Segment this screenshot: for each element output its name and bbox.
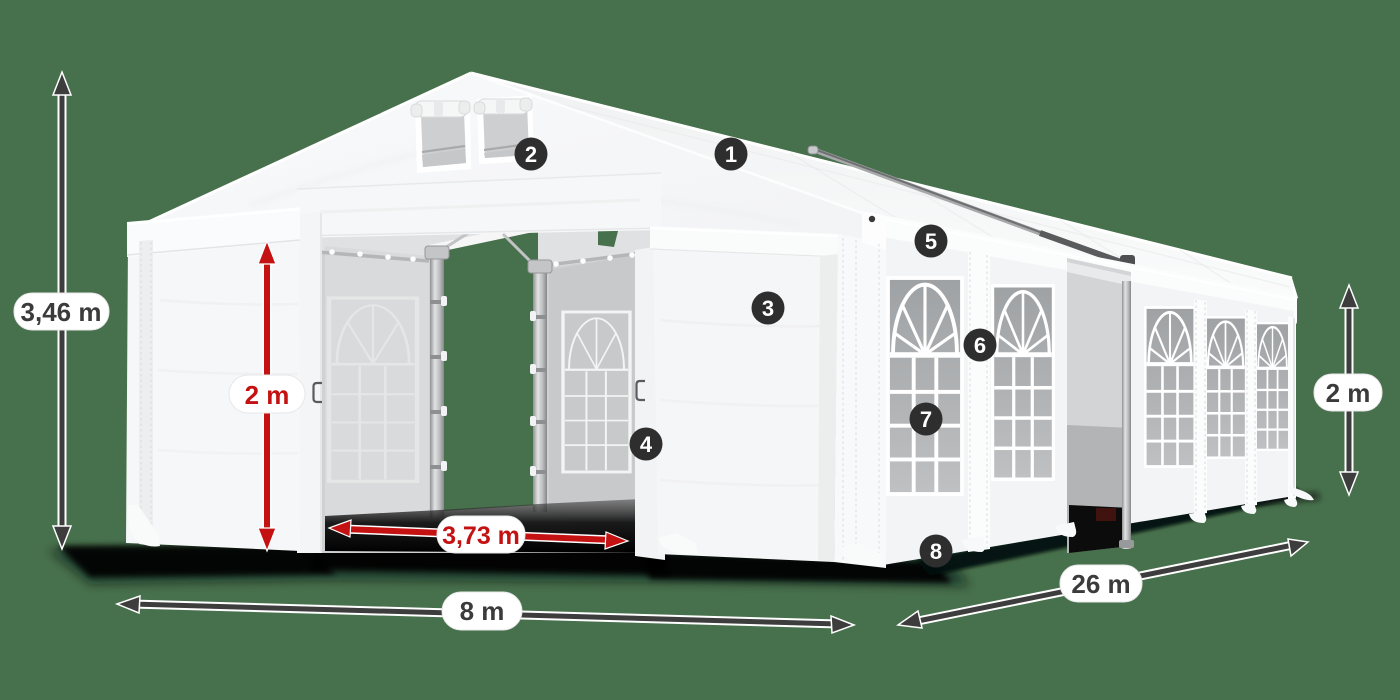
svg-text:4: 4 [640, 432, 653, 457]
svg-text:8 m: 8 m [460, 596, 505, 626]
svg-text:26 m: 26 m [1071, 569, 1130, 599]
svg-text:6: 6 [974, 333, 986, 358]
svg-text:2 m: 2 m [1326, 378, 1371, 408]
svg-text:8: 8 [930, 539, 942, 564]
svg-text:7: 7 [920, 407, 932, 432]
svg-text:3,46 m: 3,46 m [21, 297, 102, 327]
svg-text:2: 2 [525, 142, 537, 167]
svg-text:2 m: 2 m [245, 380, 290, 410]
svg-text:3,73 m: 3,73 m [442, 522, 520, 550]
svg-text:1: 1 [725, 142, 737, 167]
svg-text:5: 5 [925, 229, 937, 254]
svg-text:3: 3 [762, 296, 774, 321]
